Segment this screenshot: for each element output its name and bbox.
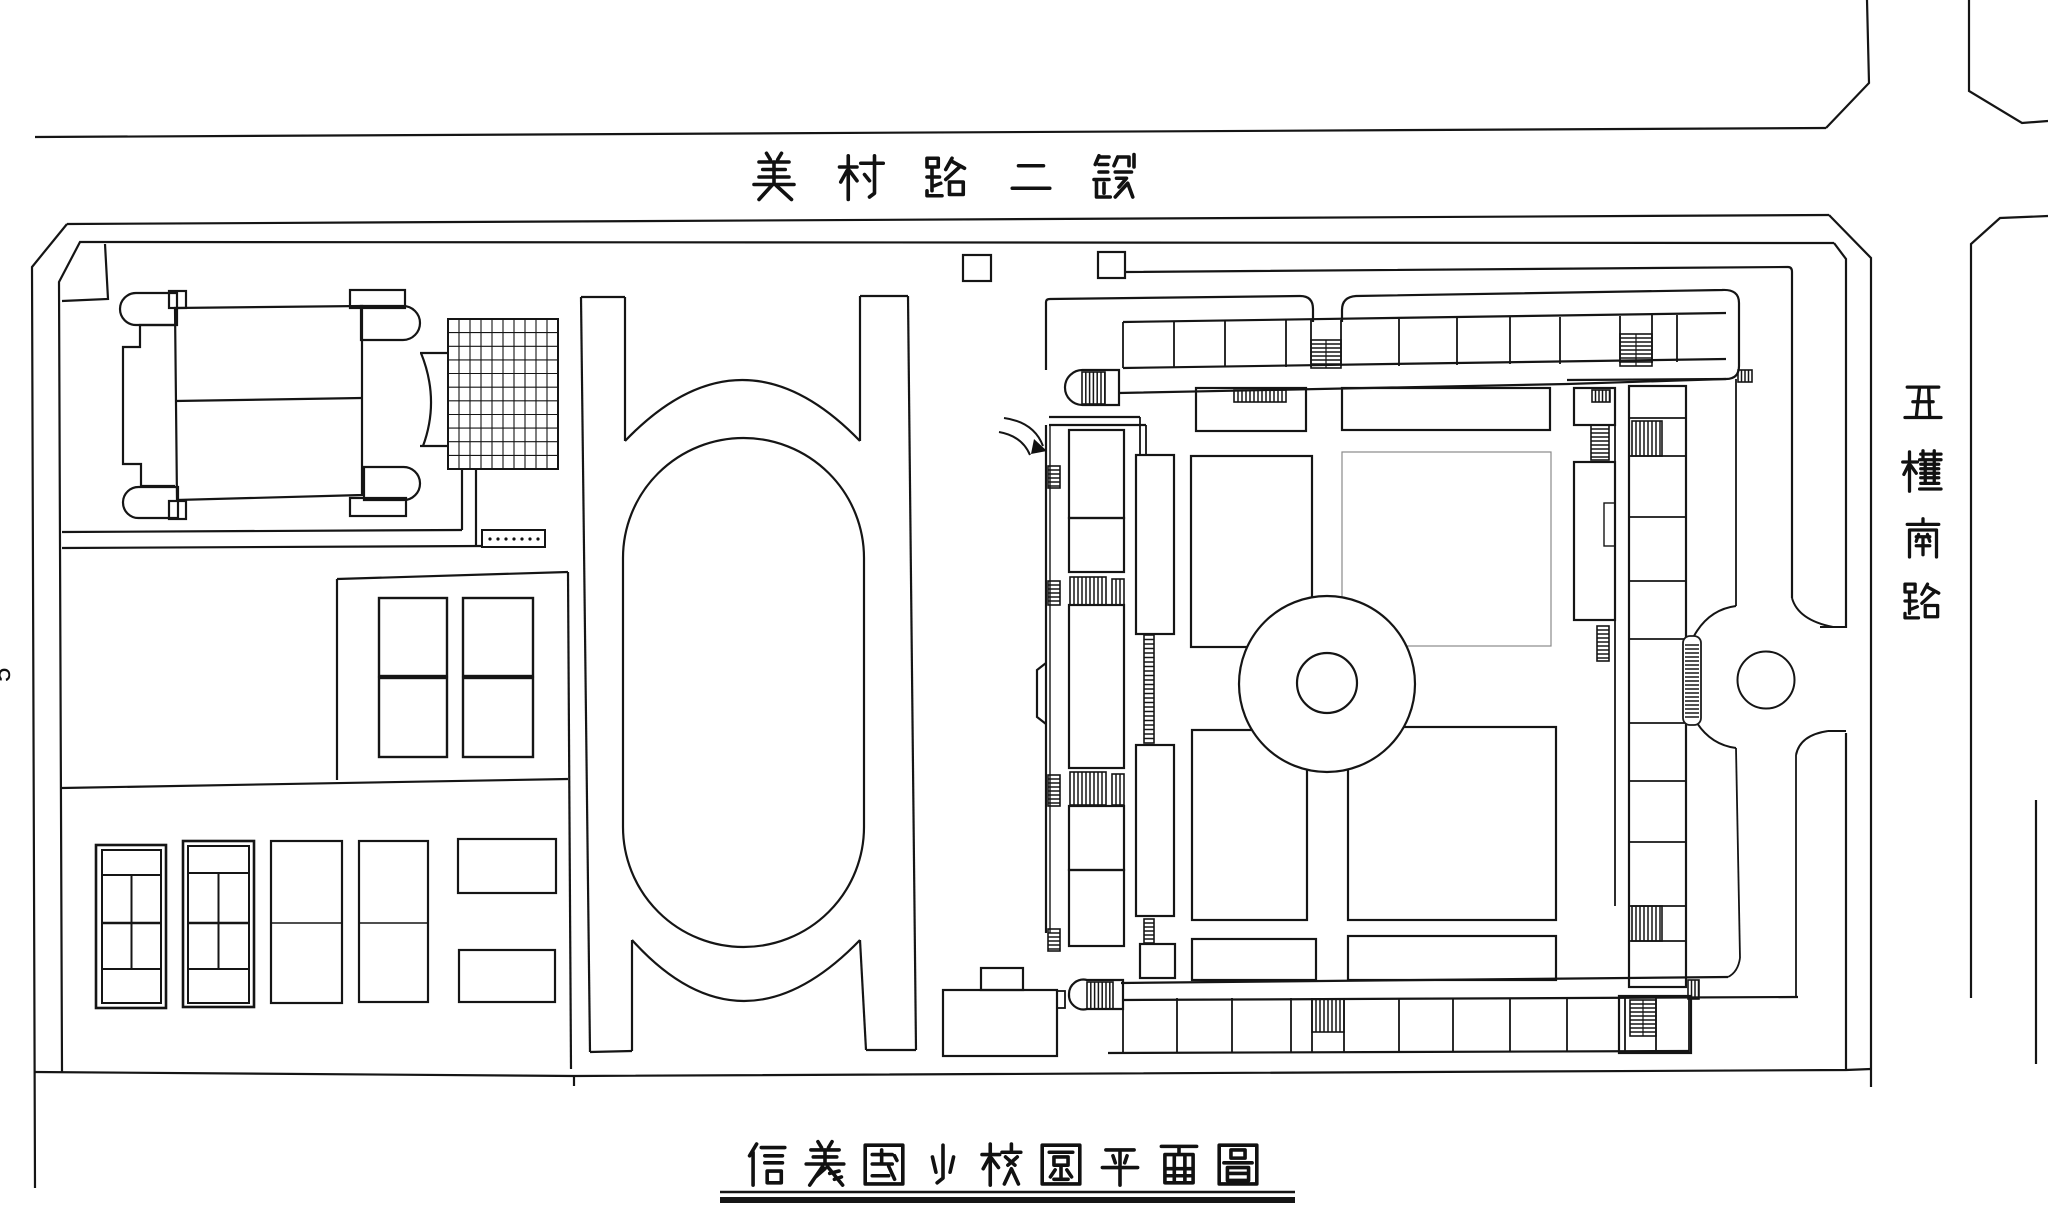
svg-text:5: 5 [0,668,16,682]
